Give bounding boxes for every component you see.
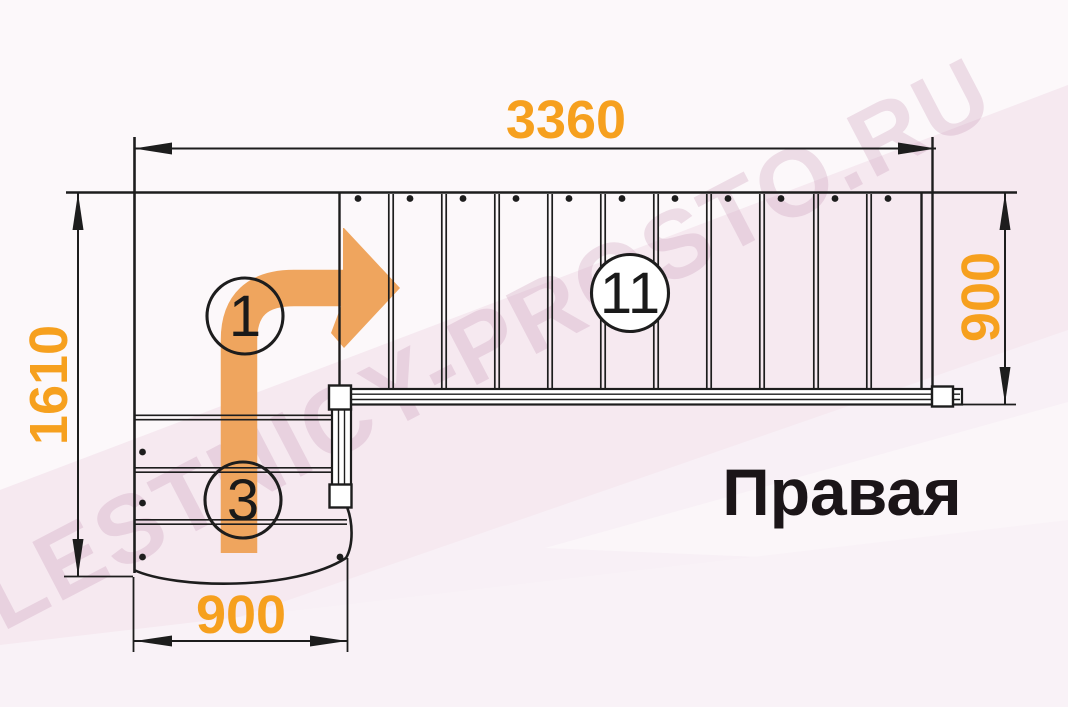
stair-plan-diagram: LESTNICY-PROSTO.RU <box>0 0 1068 707</box>
dimension-text-top: 3360 <box>466 93 666 147</box>
railing-post-end <box>932 387 953 407</box>
baluster-dots-upper <box>355 195 892 202</box>
right-edge-line <box>922 137 933 389</box>
step-number-1: 1 <box>200 285 290 349</box>
railing-post-bottom <box>330 485 352 508</box>
stair-orientation-label: Правая <box>662 456 1022 529</box>
railing-horizontal <box>331 389 962 405</box>
step-number-11: 11 <box>585 262 675 326</box>
railing-post-corner <box>329 386 351 410</box>
dimension-text-right: 900 <box>954 197 1008 397</box>
railing-vertical <box>332 409 351 486</box>
dimension-text-bottom: 900 <box>141 588 341 642</box>
step-number-3: 3 <box>198 469 288 533</box>
dimension-text-left: 1610 <box>22 285 76 485</box>
